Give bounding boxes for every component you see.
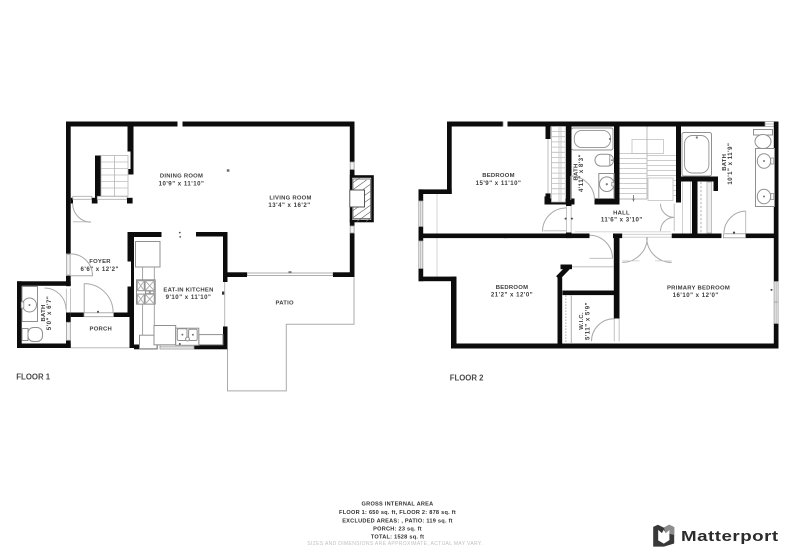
svg-text:6'6" x 12'2": 6'6" x 12'2" (80, 266, 118, 273)
svg-text:FLOOR 2: FLOOR 2 (450, 373, 484, 382)
svg-text:11'6" x 3'10": 11'6" x 3'10" (601, 217, 643, 224)
svg-text:HALL: HALL (613, 211, 630, 217)
svg-text:Matterport: Matterport (681, 528, 779, 545)
svg-text:10'9" x 11'10": 10'9" x 11'10" (159, 180, 205, 187)
svg-text:4'11" x 8'3": 4'11" x 8'3" (578, 154, 585, 192)
svg-text:BEDROOM: BEDROOM (482, 173, 515, 179)
svg-text:PATIO: PATIO (276, 300, 295, 306)
svg-text:PRIMARY BEDROOM: PRIMARY BEDROOM (667, 286, 730, 292)
svg-text:EAT-IN KITCHEN: EAT-IN KITCHEN (163, 287, 213, 293)
svg-text:FLOOR 1: FLOOR 1 (16, 373, 50, 382)
svg-text:21'2" x 12'0": 21'2" x 12'0" (491, 292, 533, 299)
svg-text:FOYER: FOYER (89, 259, 111, 265)
svg-text:PORCH: 23 sq. ft: PORCH: 23 sq. ft (373, 527, 422, 533)
svg-text:FLOOR 1: 650 sq. ft, FLOOR 2:: FLOOR 1: 650 sq. ft, FLOOR 2: 878 sq. ft (339, 510, 456, 516)
svg-text:5'0" x 6'7": 5'0" x 6'7" (46, 296, 53, 331)
svg-text:EXCLUDED AREAS: , PATIO: 119 s: EXCLUDED AREAS: , PATIO: 119 sq. ft (342, 518, 453, 524)
svg-text:TOTAL: 1528 sq. ft: TOTAL: 1528 sq. ft (371, 534, 424, 540)
svg-text:DINING ROOM: DINING ROOM (160, 174, 203, 180)
svg-text:13'4" x 16'2": 13'4" x 16'2" (268, 202, 310, 209)
svg-text:LIVING ROOM: LIVING ROOM (269, 196, 311, 202)
svg-text:GROSS INTERNAL AREA: GROSS INTERNAL AREA (362, 502, 434, 508)
svg-text:BEDROOM: BEDROOM (496, 285, 529, 291)
svg-text:10'1" x 11'9": 10'1" x 11'9" (727, 143, 734, 185)
svg-text:SIZES AND DIMENSIONS ARE APPRO: SIZES AND DIMENSIONS ARE APPROXIMATE, AC… (307, 541, 482, 547)
svg-text:PORCH: PORCH (90, 327, 113, 333)
svg-text:15'9" x 11'10": 15'9" x 11'10" (476, 180, 522, 187)
svg-text:16'10" x 12'0": 16'10" x 12'0" (673, 292, 719, 299)
svg-text:5'11" x 5'9": 5'11" x 5'9" (584, 302, 591, 340)
svg-text:9'10" x 11'10": 9'10" x 11'10" (166, 294, 212, 301)
